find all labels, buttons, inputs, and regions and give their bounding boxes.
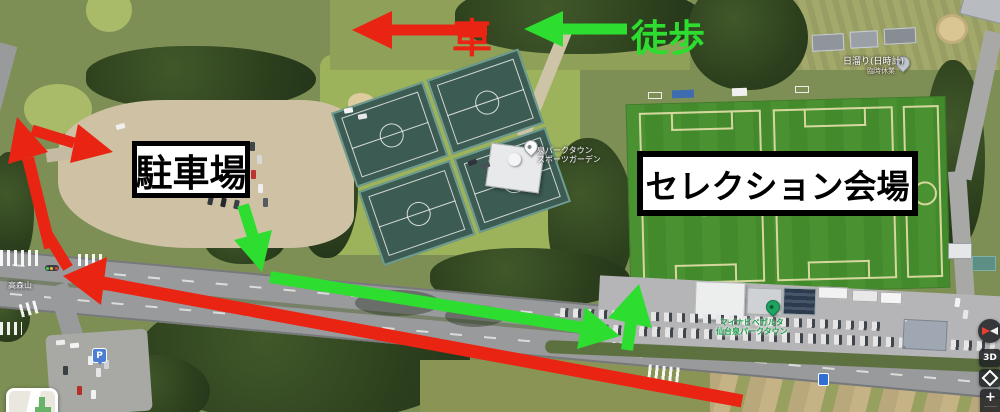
crosswalk (0, 250, 40, 266)
shed (948, 243, 972, 259)
crosswalk (647, 364, 680, 382)
water-tank (508, 153, 521, 166)
car (96, 368, 101, 377)
label-line: 仙台泉パークタウン (716, 327, 788, 336)
layer-switcher-thumbnail[interactable] (6, 388, 58, 412)
my-location-icon (982, 370, 999, 387)
label-line: マイナビベガルタ (716, 318, 788, 327)
car (258, 184, 263, 193)
my-location-button[interactable] (979, 369, 1000, 387)
zoom-in-button[interactable]: + (985, 389, 996, 406)
sundial-label[interactable]: 日溜り(日時計) 臨時休業 (843, 58, 895, 76)
trees (688, 0, 808, 90)
road-sign-blue (818, 373, 829, 386)
car (257, 155, 262, 164)
car (250, 142, 255, 151)
view-3d-button[interactable]: 3D (979, 349, 1000, 367)
dirt-parking-lot-ext (120, 195, 335, 243)
building (812, 33, 845, 52)
venue-plate: セレクション会場 (637, 151, 918, 216)
tree-shadow (355, 290, 440, 316)
truck (880, 292, 902, 305)
goal-frame (648, 92, 662, 99)
label-line: 日溜り(日時計) (843, 58, 895, 67)
building (884, 27, 917, 45)
compass-control[interactable] (978, 319, 1000, 343)
car (251, 170, 256, 179)
zoom-out-button[interactable]: − (985, 407, 996, 412)
thumb-green (39, 397, 45, 409)
crosswalk (78, 254, 102, 266)
zoom-control: + − (980, 389, 1000, 412)
label-line: スポーツガーデン (537, 155, 601, 164)
truck (818, 286, 848, 299)
goal-frame (795, 86, 809, 93)
label-line: 臨時休業 (843, 67, 895, 76)
sports-garden-label[interactable]: 泉パークタウン スポーツガーデン (537, 146, 601, 164)
parking-plate: 駐車場 (132, 141, 250, 198)
car (91, 390, 96, 399)
vegalta-label[interactable]: マイナビベガルタ 仙台泉パークタウン (716, 318, 788, 336)
walk-route-label: 徒歩 (631, 8, 705, 62)
label-line: 泉パークタウン (537, 146, 601, 155)
court-pad (972, 256, 996, 271)
car (77, 386, 82, 395)
car (63, 366, 68, 375)
compass-needle-icon (982, 327, 998, 335)
car (263, 198, 268, 207)
car-route-label: 車 (452, 6, 492, 64)
tree-shadow (445, 305, 505, 327)
tent (732, 88, 747, 97)
truck (852, 290, 878, 303)
crosswalk (0, 322, 22, 335)
sundial-plaza (936, 14, 968, 44)
traffic-light-icon (45, 265, 59, 271)
parking-p-pin-tip (97, 361, 103, 365)
parking-pin-letter: P (96, 351, 103, 361)
solar-roof-building (783, 287, 817, 315)
building (850, 30, 879, 48)
house-roof (902, 319, 948, 351)
car (70, 343, 79, 349)
road-name-label: 高森山 (8, 281, 32, 290)
car (56, 340, 65, 346)
satellite-map-canvas[interactable]: 車 徒歩 駐車場 セレクション会場 泉パークタウン スポーツガーデン マイナビベ… (0, 0, 1000, 412)
golf-green-2 (86, 0, 132, 32)
bench-tarp (672, 90, 694, 99)
